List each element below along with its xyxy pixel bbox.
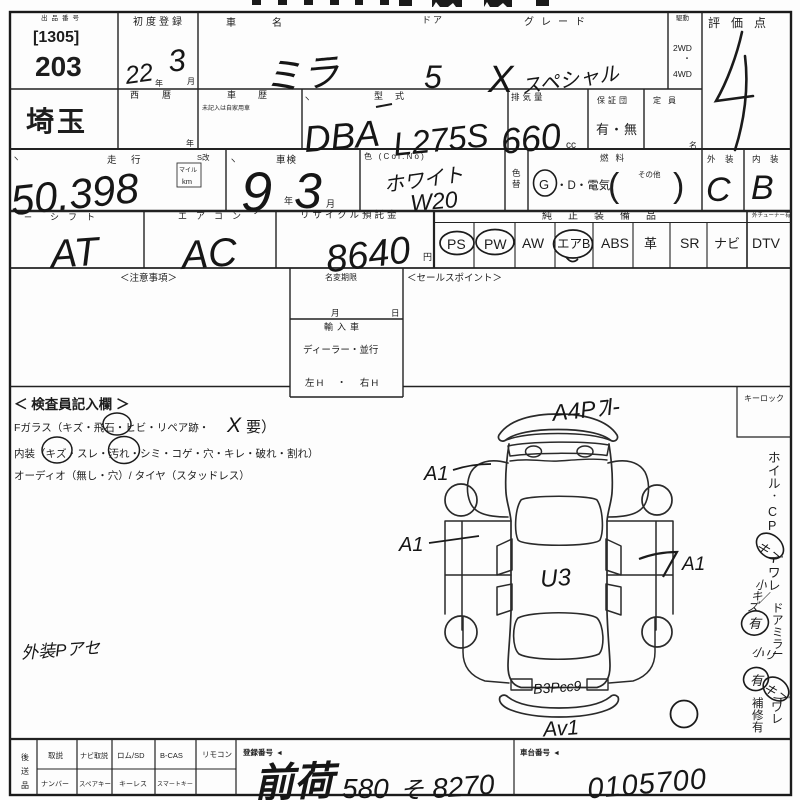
svg-text:輸入車: 輸入車 — [324, 321, 363, 332]
svg-text:): ) — [673, 167, 684, 205]
svg-text:(: ( — [608, 167, 620, 205]
svg-text:AT: AT — [47, 230, 103, 278]
svg-text:ナンバー: ナンバー — [41, 780, 69, 788]
svg-text:ヽ: ヽ — [303, 94, 311, 103]
svg-text:駆動: 駆動 — [676, 13, 690, 22]
svg-text:S改: S改 — [197, 152, 210, 162]
svg-text:そ: そ — [400, 777, 424, 800]
svg-text:22: 22 — [122, 58, 155, 90]
svg-text:G: G — [539, 177, 549, 192]
svg-text:内: 内 — [752, 154, 761, 164]
svg-text:前荷: 前荷 — [253, 759, 341, 800]
svg-text:キーレス: キーレス — [119, 780, 147, 788]
svg-text:要）: 要） — [246, 419, 276, 436]
svg-text:未記入は自家用車: 未記入は自家用車 — [202, 104, 250, 112]
svg-text:シフト: シフト — [50, 212, 104, 222]
svg-text:外チューナー有: 外チューナー有 — [752, 211, 791, 219]
svg-text:ABS: ABS — [601, 235, 629, 251]
svg-text:エアコン: エアコン — [178, 211, 250, 221]
svg-text:＜注意事項＞: ＜注意事項＞ — [120, 272, 177, 284]
svg-text:年: 年 — [155, 78, 163, 88]
svg-text:PS: PS — [447, 236, 466, 252]
svg-text:4WD: 4WD — [673, 69, 692, 79]
svg-text:660: 660 — [499, 115, 563, 162]
svg-text:A1: A1 — [398, 534, 423, 556]
svg-text:ナビ: ナビ — [714, 236, 740, 251]
svg-text:出品番号: 出品番号 — [41, 13, 83, 22]
svg-text:P: P — [768, 519, 776, 533]
svg-text:ノ: ノ — [253, 207, 261, 216]
svg-text:外: 外 — [707, 154, 716, 164]
svg-text:ド: ド — [772, 603, 784, 615]
svg-text:3: 3 — [166, 42, 187, 79]
svg-text:イ: イ — [768, 464, 781, 478]
svg-text:B3Pcc9: B3Pcc9 — [533, 678, 582, 697]
svg-text:月: 月 — [331, 308, 340, 318]
svg-text:排気量: 排気量 — [511, 92, 546, 102]
svg-text:品: 品 — [21, 781, 29, 790]
svg-text:・: ・ — [770, 491, 779, 501]
svg-text:走: 走 — [107, 155, 117, 166]
svg-text:レ: レ — [771, 712, 783, 726]
svg-text:名: 名 — [272, 16, 282, 29]
svg-text:名: 名 — [689, 140, 697, 150]
svg-text:員: 員 — [668, 96, 676, 105]
svg-text:名変期限: 名変期限 — [325, 272, 357, 282]
svg-text:日: 日 — [391, 308, 400, 318]
svg-text:B: B — [751, 169, 774, 207]
svg-text:歴: 歴 — [258, 90, 267, 100]
svg-text:リモコン: リモコン — [202, 750, 232, 759]
svg-text:車: 車 — [227, 89, 236, 100]
svg-text:装: 装 — [770, 154, 779, 164]
svg-text:補: 補 — [752, 697, 764, 710]
svg-text:ミ: ミ — [772, 627, 784, 639]
svg-text:オーディオ（無し・穴）/ タイヤ（スタッドレス）: オーディオ（無し・穴）/ タイヤ（スタッドレス） — [14, 469, 250, 482]
svg-text:リサイクル預託金: リサイクル預託金 — [300, 209, 400, 221]
svg-text:ル: ル — [768, 477, 781, 491]
svg-text:暦: 暦 — [162, 90, 171, 100]
svg-text:A1: A1 — [423, 463, 448, 485]
svg-text:・D・電気: ・D・電気 — [556, 178, 611, 192]
svg-text:色: 色 — [512, 168, 521, 178]
svg-text:修: 修 — [752, 708, 764, 722]
svg-text:AW: AW — [522, 235, 545, 251]
svg-text:ー: ー — [24, 213, 32, 222]
svg-text:ホ: ホ — [768, 451, 781, 465]
svg-text:AC: AC — [178, 230, 240, 278]
svg-text:ドア: ドア — [422, 15, 444, 25]
svg-text:登録番号: 登録番号 — [242, 747, 273, 757]
svg-text:燃料: 燃料 — [600, 153, 631, 163]
svg-text:年: 年 — [284, 195, 293, 206]
svg-text:DTV: DTV — [752, 235, 781, 251]
svg-text:203: 203 — [35, 51, 82, 82]
svg-text:ヽ: ヽ — [12, 154, 20, 163]
svg-text:B-CAS: B-CAS — [160, 751, 183, 760]
svg-text:2WD: 2WD — [673, 43, 692, 53]
svg-text:西: 西 — [130, 90, 139, 100]
svg-text:革: 革 — [644, 236, 657, 251]
svg-text:評価点: 評価点 — [708, 15, 777, 30]
svg-text:型: 型 — [374, 91, 383, 101]
svg-text:[1305]: [1305] — [33, 29, 79, 46]
svg-text:月: 月 — [326, 199, 335, 209]
svg-text:X: X — [226, 414, 242, 437]
svg-text:保証団: 保証団 — [597, 95, 630, 105]
svg-text:ディーラー・並行: ディーラー・並行 — [303, 344, 379, 356]
svg-text:580: 580 — [342, 773, 389, 800]
svg-text:ヽ: ヽ — [229, 156, 237, 165]
svg-text:年: 年 — [186, 138, 194, 148]
svg-text:C: C — [706, 171, 731, 209]
svg-text:5: 5 — [424, 59, 442, 95]
svg-text:式: 式 — [395, 90, 404, 101]
svg-text:ミラ: ミラ — [262, 52, 341, 100]
svg-text:＜セールスポイント＞: ＜セールスポイント＞ — [407, 273, 502, 284]
svg-text:純正装備品: 純正装備品 — [542, 209, 672, 222]
svg-text:装: 装 — [725, 154, 734, 164]
svg-text:PW: PW — [484, 236, 507, 252]
svg-text:スペアキー: スペアキー — [79, 780, 111, 788]
svg-text:◄: ◄ — [553, 750, 560, 757]
svg-text:内装（キズ・スレ・汚れ・シミ・コゲ・穴・キレ・破れ・割れ）: 内装（キズ・スレ・汚れ・シミ・コゲ・穴・キレ・破れ・割れ） — [14, 447, 319, 460]
svg-text:SR: SR — [680, 235, 699, 251]
svg-text:◄: ◄ — [276, 750, 283, 757]
svg-text:ナビ取説: ナビ取説 — [80, 751, 108, 760]
svg-text:Av1: Av1 — [540, 716, 579, 742]
svg-text:替: 替 — [512, 179, 521, 189]
svg-text:車台番号: 車台番号 — [520, 747, 550, 757]
svg-text:W20: W20 — [409, 186, 459, 216]
svg-text:8270: 8270 — [431, 769, 496, 800]
svg-text:A1: A1 — [681, 554, 705, 575]
svg-text:スマートキー: スマートキー — [157, 781, 193, 788]
svg-text:定: 定 — [653, 95, 661, 105]
svg-text:その他: その他 — [638, 169, 661, 179]
svg-text:Fガラス（キズ・飛石・ヒビ・リペア跡・: Fガラス（キズ・飛石・ヒビ・リペア跡・ — [14, 421, 209, 434]
svg-text:有: 有 — [752, 720, 764, 734]
svg-text:C: C — [768, 505, 777, 519]
svg-text:円: 円 — [423, 252, 432, 262]
svg-text:車: 車 — [226, 16, 236, 29]
svg-text:取説: 取説 — [48, 750, 63, 760]
svg-text:エアB: エアB — [557, 237, 590, 251]
svg-text:＜ 検査員記入欄 ＞: ＜ 検査員記入欄 ＞ — [14, 396, 130, 412]
svg-text:左H ・ 右H: 左H ・ 右H — [305, 377, 380, 389]
svg-text:・: ・ — [683, 54, 691, 63]
svg-text:グレード: グレード — [524, 15, 592, 28]
svg-text:km: km — [182, 177, 192, 186]
svg-text:色 (Col.No): 色 (Col.No) — [364, 151, 426, 161]
svg-text:有・無: 有・無 — [596, 122, 638, 137]
svg-text:U3: U3 — [539, 564, 572, 593]
svg-text:月: 月 — [187, 77, 195, 86]
svg-text:ア: ア — [772, 615, 784, 627]
svg-text:ワ: ワ — [768, 566, 781, 580]
svg-text:ロム/SD: ロム/SD — [117, 751, 145, 760]
svg-text:マイル: マイル — [179, 167, 197, 174]
svg-text:埼玉: 埼玉 — [26, 106, 88, 137]
svg-text:キーロック: キーロック — [744, 394, 784, 403]
svg-text:初度登録: 初度登録 — [133, 15, 185, 28]
svg-text:後: 後 — [21, 752, 29, 762]
svg-text:cc: cc — [566, 140, 576, 151]
svg-text:送: 送 — [21, 766, 29, 776]
svg-text:有: 有 — [748, 616, 763, 631]
